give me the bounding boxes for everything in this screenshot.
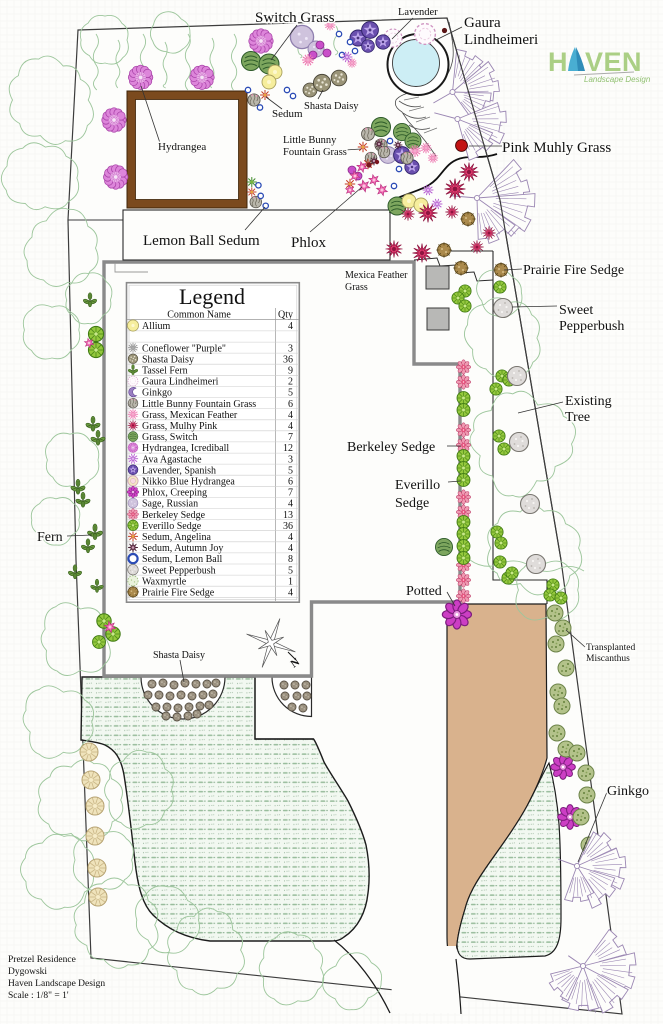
svg-text:Everillo: Everillo	[395, 478, 440, 493]
svg-text:Prairie Fire Sedge: Prairie Fire Sedge	[142, 588, 215, 599]
svg-text:4: 4	[288, 543, 293, 554]
svg-text:Shasta Daisy: Shasta Daisy	[142, 354, 194, 365]
svg-text:Sedum, Autumn Joy: Sedum, Autumn Joy	[142, 543, 223, 554]
svg-text:Grass, Mexican Feather: Grass, Mexican Feather	[142, 410, 238, 421]
svg-text:Everillo Sedge: Everillo Sedge	[142, 521, 202, 532]
svg-text:Fern: Fern	[37, 530, 63, 545]
svg-text:Ginkgo: Ginkgo	[607, 784, 649, 799]
svg-text:2: 2	[288, 377, 293, 388]
svg-text:Gaura: Gaura	[464, 15, 501, 31]
svg-text:Pink Muhly Grass: Pink Muhly Grass	[502, 140, 611, 156]
svg-text:Pepperbush: Pepperbush	[559, 319, 624, 334]
svg-text:Common Name: Common Name	[167, 310, 231, 321]
svg-text:1: 1	[288, 576, 293, 587]
svg-text:Berkeley Sedge: Berkeley Sedge	[347, 440, 435, 455]
svg-text:6: 6	[288, 477, 293, 488]
svg-text:Potted: Potted	[406, 584, 442, 599]
svg-text:Sage, Russian: Sage, Russian	[142, 499, 198, 510]
svg-text:Sweet: Sweet	[559, 303, 593, 318]
svg-text:Tassel Fern: Tassel Fern	[142, 366, 188, 377]
svg-text:7: 7	[288, 432, 293, 443]
svg-text:H: H	[548, 47, 568, 77]
svg-text:Phlox, Creeping: Phlox, Creeping	[142, 488, 207, 499]
svg-text:Fountain Grass: Fountain Grass	[283, 147, 347, 158]
svg-text:5: 5	[288, 565, 293, 576]
svg-text:Phlox: Phlox	[291, 235, 327, 251]
svg-text:Existing: Existing	[565, 394, 612, 409]
svg-text:5: 5	[288, 465, 293, 476]
svg-text:Shasta Daisy: Shasta Daisy	[153, 650, 205, 661]
svg-text:VEN: VEN	[585, 47, 642, 77]
svg-text:Haven Landscape Design: Haven Landscape Design	[8, 979, 105, 989]
svg-text:Grass: Grass	[345, 282, 368, 293]
svg-text:5: 5	[288, 388, 293, 399]
svg-text:Switch Grass: Switch Grass	[255, 10, 335, 26]
svg-text:Sweet Pepperbush: Sweet Pepperbush	[142, 565, 216, 576]
svg-text:Coneflower "Purple": Coneflower "Purple"	[142, 343, 226, 354]
svg-text:12: 12	[283, 443, 293, 454]
svg-text:3: 3	[288, 343, 293, 354]
svg-text:Sedum: Sedum	[272, 108, 303, 120]
svg-text:Miscanthus: Miscanthus	[586, 654, 630, 664]
svg-text:Dygowski: Dygowski	[8, 967, 47, 977]
svg-text:Mexica Feather: Mexica Feather	[345, 270, 408, 281]
svg-text:Ginkgo: Ginkgo	[142, 388, 172, 399]
svg-text:Little Bunny Fountain Grass: Little Bunny Fountain Grass	[142, 399, 256, 410]
svg-text:8: 8	[288, 554, 293, 565]
svg-text:Tree: Tree	[565, 410, 590, 425]
svg-text:Sedge: Sedge	[395, 496, 429, 511]
svg-text:Grass, Switch: Grass, Switch	[142, 432, 198, 443]
svg-text:13: 13	[283, 510, 293, 521]
svg-text:Lavender, Spanish: Lavender, Spanish	[142, 465, 216, 476]
svg-text:7: 7	[288, 488, 293, 499]
svg-text:Lindheimeri: Lindheimeri	[464, 32, 538, 48]
svg-text:Waxmyrtle: Waxmyrtle	[142, 576, 187, 587]
svg-text:Qty: Qty	[278, 310, 293, 321]
svg-text:4: 4	[288, 532, 293, 543]
svg-text:Gaura Lindheimeri: Gaura Lindheimeri	[142, 377, 219, 388]
svg-text:4: 4	[288, 499, 293, 510]
svg-text:Scale : 1/8" = 1': Scale : 1/8" = 1'	[8, 991, 69, 1001]
svg-text:6: 6	[288, 399, 293, 410]
svg-text:Allium: Allium	[142, 321, 171, 332]
svg-text:Legend: Legend	[179, 284, 245, 309]
svg-text:Transplanted: Transplanted	[586, 643, 636, 653]
svg-text:4: 4	[288, 410, 293, 421]
svg-text:Little Bunny: Little Bunny	[283, 135, 337, 146]
svg-text:Sedum, Angelina: Sedum, Angelina	[142, 532, 211, 543]
svg-text:Sedum, Lemon Ball: Sedum, Lemon Ball	[142, 554, 222, 565]
svg-text:Berkeley Sedge: Berkeley Sedge	[142, 510, 206, 521]
svg-text:Grass, Mulhy Pink: Grass, Mulhy Pink	[142, 421, 217, 432]
svg-text:Pretzel Residence: Pretzel Residence	[8, 955, 76, 965]
svg-text:3: 3	[288, 454, 293, 465]
svg-text:Shasta Daisy: Shasta Daisy	[304, 101, 359, 112]
svg-text:4: 4	[288, 421, 293, 432]
svg-text:4: 4	[288, 321, 293, 332]
svg-text:Nikko Blue Hydrangea: Nikko Blue Hydrangea	[142, 477, 235, 488]
svg-text:Lemon Ball Sedum: Lemon Ball Sedum	[143, 233, 260, 249]
svg-text:Lavender: Lavender	[398, 7, 438, 18]
svg-text:Hydrangea, Icrediball: Hydrangea, Icrediball	[142, 443, 229, 454]
svg-text:36: 36	[283, 521, 293, 532]
svg-text:Hydrangea: Hydrangea	[158, 141, 206, 153]
svg-text:9: 9	[288, 366, 293, 377]
svg-text:Landscape Design: Landscape Design	[584, 75, 651, 84]
svg-text:Prairie Fire Sedge: Prairie Fire Sedge	[523, 263, 624, 278]
svg-text:36: 36	[283, 354, 293, 365]
svg-text:4: 4	[288, 588, 293, 599]
svg-text:Ava Agastache: Ava Agastache	[142, 454, 202, 465]
